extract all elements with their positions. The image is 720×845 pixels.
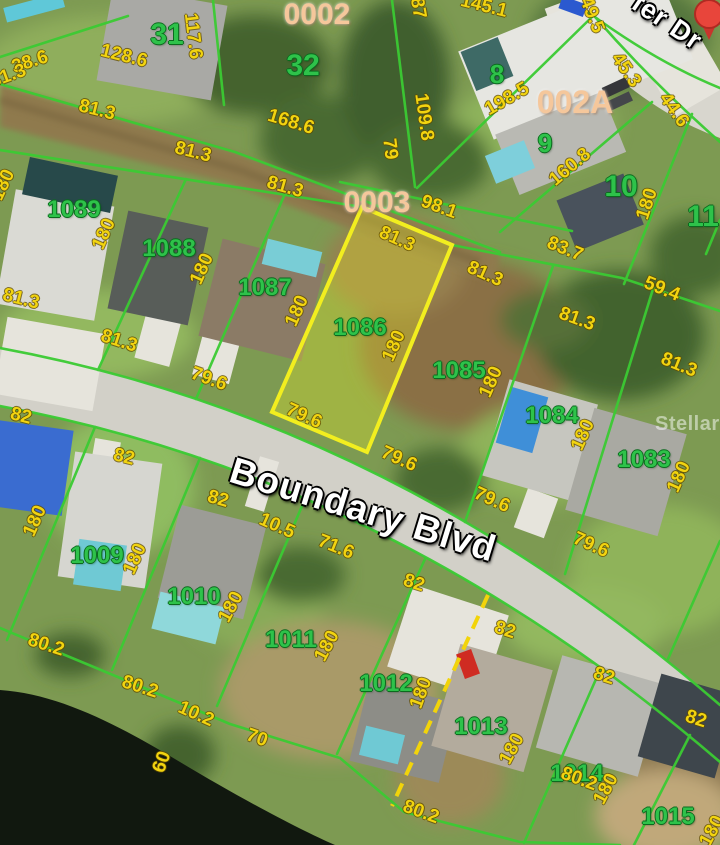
aerial-photo-layer [0, 0, 720, 845]
aerial-parcel-map: 3132891011108910881087108610851084108310… [0, 0, 720, 845]
watermark: StellarMLS [655, 413, 720, 436]
